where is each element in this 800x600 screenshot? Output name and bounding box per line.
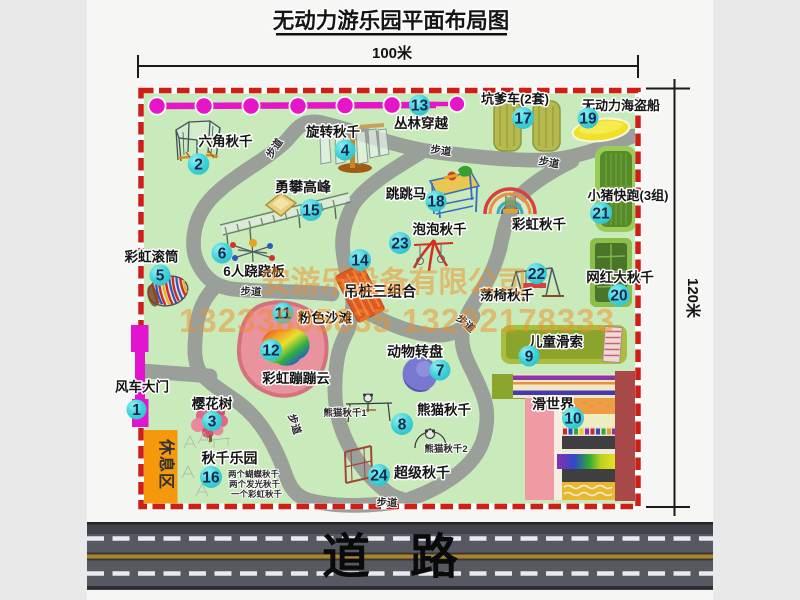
svg-text:4: 4: [341, 143, 350, 160]
svg-text:10: 10: [564, 411, 581, 428]
svg-text:泡泡秋千: 泡泡秋千: [413, 221, 467, 237]
svg-text:超级秋千: 超级秋千: [393, 465, 450, 481]
svg-text:安游乐设备有限公司: 安游乐设备有限公司: [261, 265, 527, 299]
svg-text:一个彩虹秋千: 一个彩虹秋千: [231, 489, 283, 499]
svg-text:路: 路: [410, 531, 459, 584]
svg-text:13233805835 13202178333: 13233805835 13202178333: [179, 302, 615, 339]
svg-text:6: 6: [218, 246, 227, 263]
svg-text:道: 道: [322, 531, 370, 584]
svg-text:息: 息: [157, 456, 176, 472]
svg-text:22: 22: [528, 266, 545, 283]
svg-text:跳跳马: 跳跳马: [386, 186, 427, 202]
svg-text:网红大秋千: 网红大秋千: [586, 269, 654, 285]
svg-text:12: 12: [262, 343, 279, 360]
svg-text:1: 1: [132, 402, 141, 419]
svg-text:风车大门: 风车大门: [115, 379, 169, 395]
svg-text:丛林穿越: 丛林穿越: [394, 115, 448, 131]
svg-text:坑爹车(2套): 坑爹车(2套): [481, 92, 549, 107]
svg-text:旋转秋千: 旋转秋千: [305, 124, 360, 140]
svg-text:100米: 100米: [372, 44, 413, 62]
svg-text:彩虹蹦蹦云: 彩虹蹦蹦云: [261, 370, 330, 386]
svg-text:21: 21: [592, 206, 610, 223]
svg-text:熊猫秋千2: 熊猫秋千2: [424, 443, 467, 455]
svg-text:18: 18: [427, 194, 445, 211]
svg-text:小猪快跑(3组): 小猪快跑(3组): [588, 188, 669, 203]
svg-text:5: 5: [156, 268, 165, 285]
svg-text:彩虹秋千: 彩虹秋千: [511, 216, 566, 232]
svg-text:23: 23: [391, 236, 409, 253]
svg-text:2: 2: [194, 157, 203, 174]
svg-text:休: 休: [157, 438, 176, 456]
svg-text:勇攀高峰: 勇攀高峰: [275, 179, 332, 195]
svg-text:9: 9: [525, 349, 534, 366]
svg-text:17: 17: [514, 111, 531, 128]
svg-text:8: 8: [398, 417, 407, 434]
svg-text:16: 16: [202, 470, 220, 487]
svg-text:步道: 步道: [240, 284, 262, 298]
svg-text:两个发光秋千: 两个发光秋千: [229, 479, 281, 489]
svg-text:13: 13: [411, 98, 429, 115]
svg-text:无动力游乐园平面布局图: 无动力游乐园平面布局图: [273, 8, 510, 33]
svg-text:熊猫秋千: 熊猫秋千: [417, 402, 471, 418]
svg-text:熊猫秋千1: 熊猫秋千1: [323, 407, 367, 419]
svg-text:秋千乐园: 秋千乐园: [202, 450, 258, 466]
svg-text:120米: 120米: [684, 278, 702, 319]
svg-text:彩虹滚筒: 彩虹滚筒: [124, 249, 179, 265]
svg-text:六角秋千: 六角秋千: [199, 133, 253, 149]
svg-text:24: 24: [370, 468, 388, 485]
svg-text:樱花树: 樱花树: [192, 396, 233, 412]
svg-text:15: 15: [302, 203, 320, 220]
svg-text:3: 3: [208, 414, 217, 431]
svg-text:步道: 步道: [376, 495, 398, 509]
svg-text:19: 19: [579, 111, 597, 128]
svg-text:7: 7: [436, 363, 445, 380]
svg-text:区: 区: [157, 473, 175, 489]
svg-text:动物转盘: 动物转盘: [387, 344, 443, 360]
svg-text:两个蝴蝶秋千: 两个蝴蝶秋千: [228, 469, 280, 479]
